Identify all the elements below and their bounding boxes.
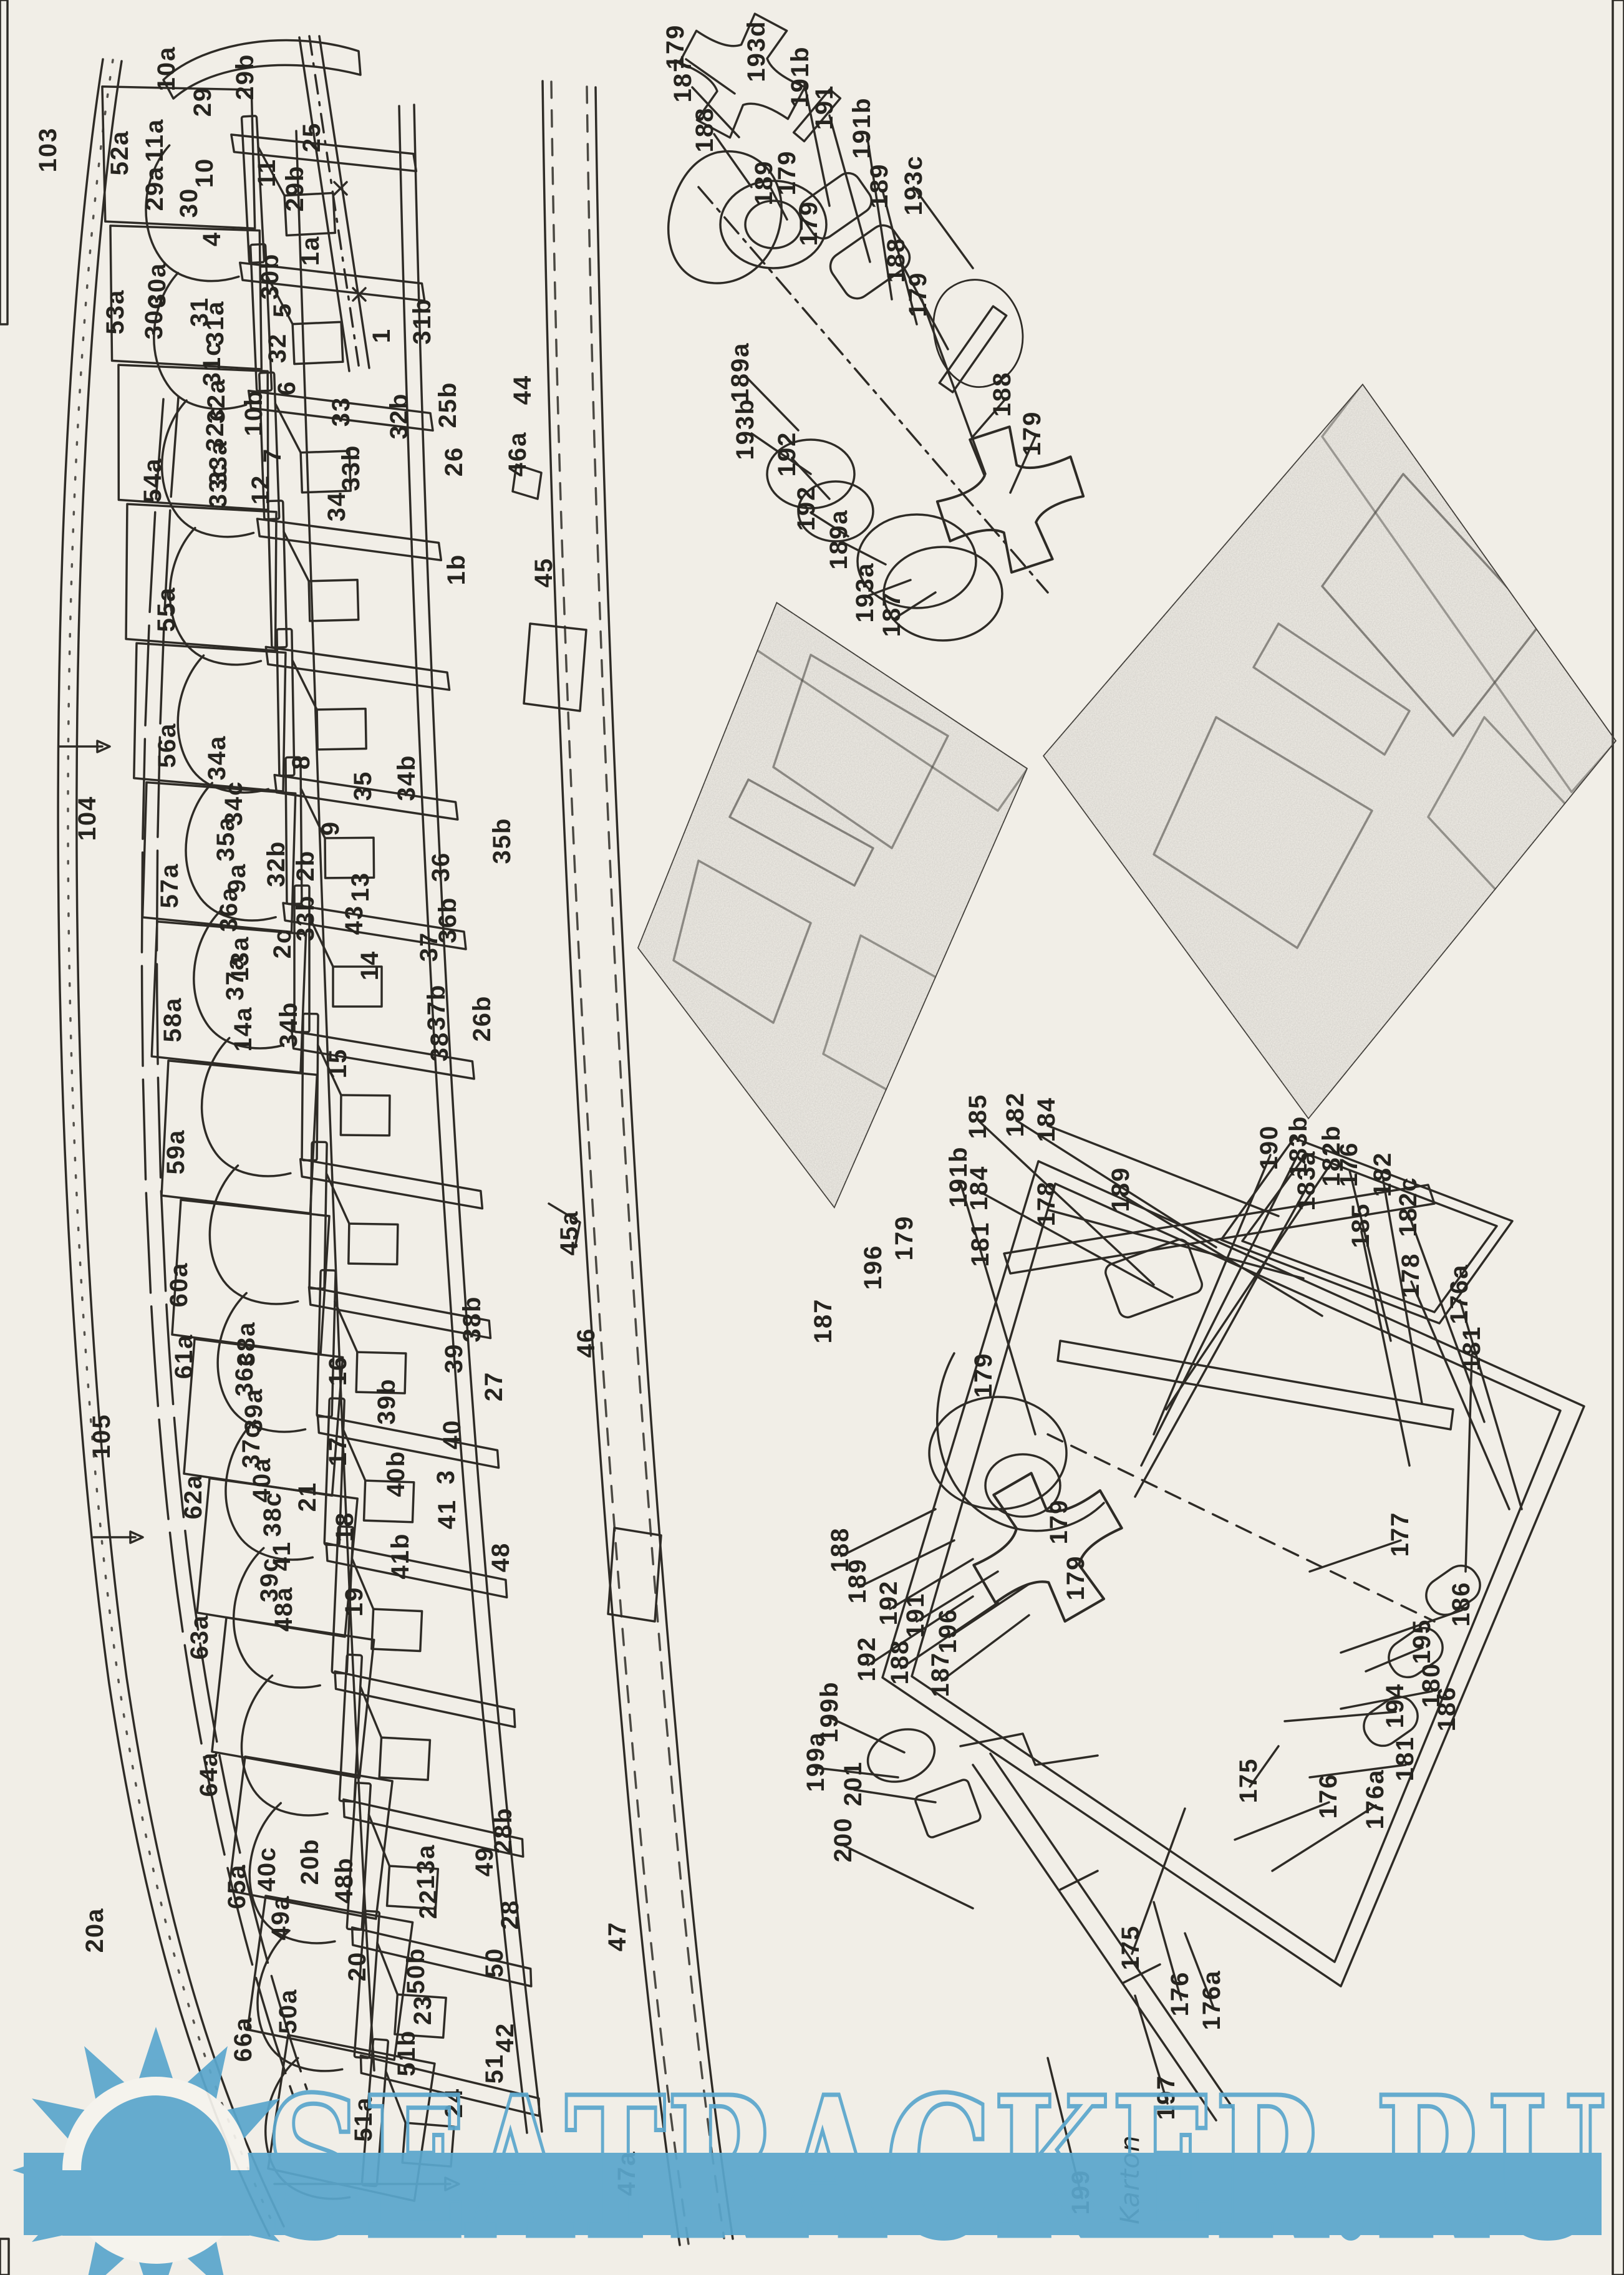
direction-arrow <box>59 741 459 2190</box>
frame-skeleton <box>141 108 544 2215</box>
photo-right <box>1029 368 1624 1141</box>
line-art-canvas <box>0 0 1624 2275</box>
photo-left <box>624 586 1060 1222</box>
exploded-view-bottom <box>817 1121 1584 2198</box>
leader-lines <box>817 1121 1522 2198</box>
scanned-page: 10310a29b2911a2552a101129b29a3041a30b30a… <box>0 0 1624 2275</box>
hull-line-art <box>58 36 733 2245</box>
keel-strip <box>513 81 733 2245</box>
exploded-view-top <box>659 0 1099 640</box>
